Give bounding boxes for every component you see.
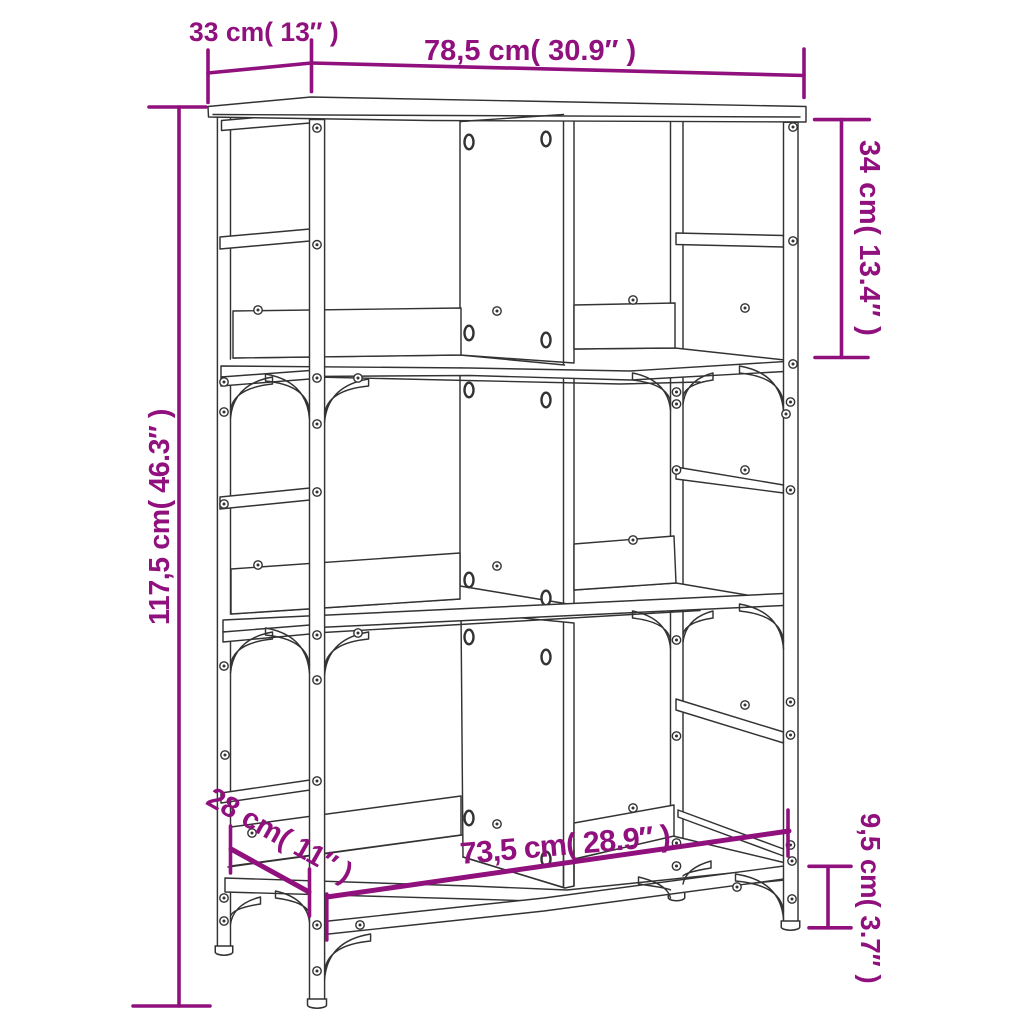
svg-text:9,5 cm( 3.7″ ): 9,5 cm( 3.7″ ) [855,813,886,984]
svg-text:34 cm( 13.4″ ): 34 cm( 13.4″ ) [853,140,885,336]
svg-text:78,5 cm( 30.9″ ): 78,5 cm( 30.9″ ) [424,35,636,67]
svg-text:117,5 cm( 46.3″ ): 117,5 cm( 46.3″ ) [144,409,176,625]
svg-text:33 cm( 13″ ): 33 cm( 13″ ) [189,17,339,47]
